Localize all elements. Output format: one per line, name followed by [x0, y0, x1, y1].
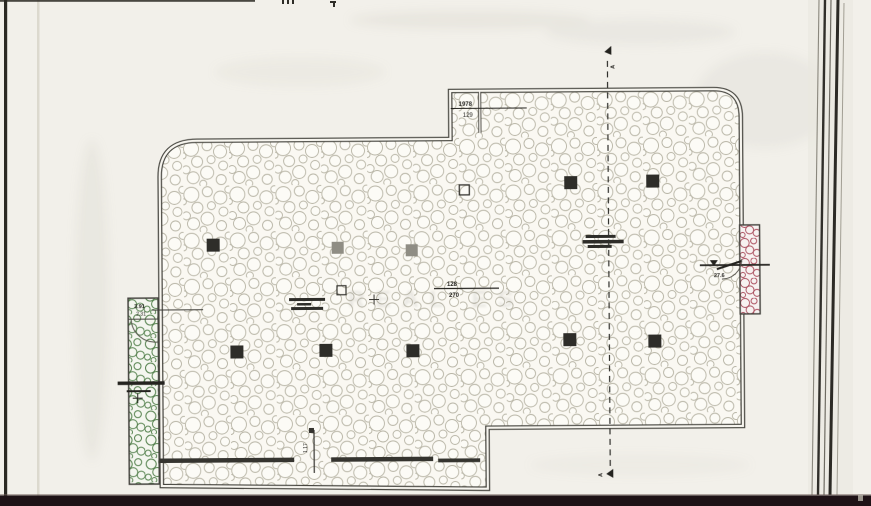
left-page-border [4, 0, 7, 506]
section-label-top: A [610, 65, 616, 69]
top-page-border [0, 0, 255, 2]
bottom-dark-bar [0, 496, 871, 506]
book-page-edges [808, 0, 853, 495]
dim-notch-upper: 1978 [459, 102, 473, 108]
scanned-page: Potkrovlje: [0, 0, 871, 506]
floor-plan-drawing: 3.91 2.31 27.6 [0, 0, 871, 506]
dim-center-upper: 128 [447, 282, 458, 288]
dim-left-lower: 2.31 [136, 312, 146, 318]
dim-center-lower: 270 [449, 293, 460, 299]
bottom-bar-mark [858, 495, 863, 501]
dim-bottom: 1.17 [303, 443, 309, 453]
section-label-bottom: A [598, 473, 604, 477]
dim-left-upper: 3.91 [134, 304, 145, 310]
page-crease [37, 0, 40, 506]
dim-right: 27.6 [714, 273, 725, 279]
dim-notch-lower: 129 [463, 113, 474, 119]
